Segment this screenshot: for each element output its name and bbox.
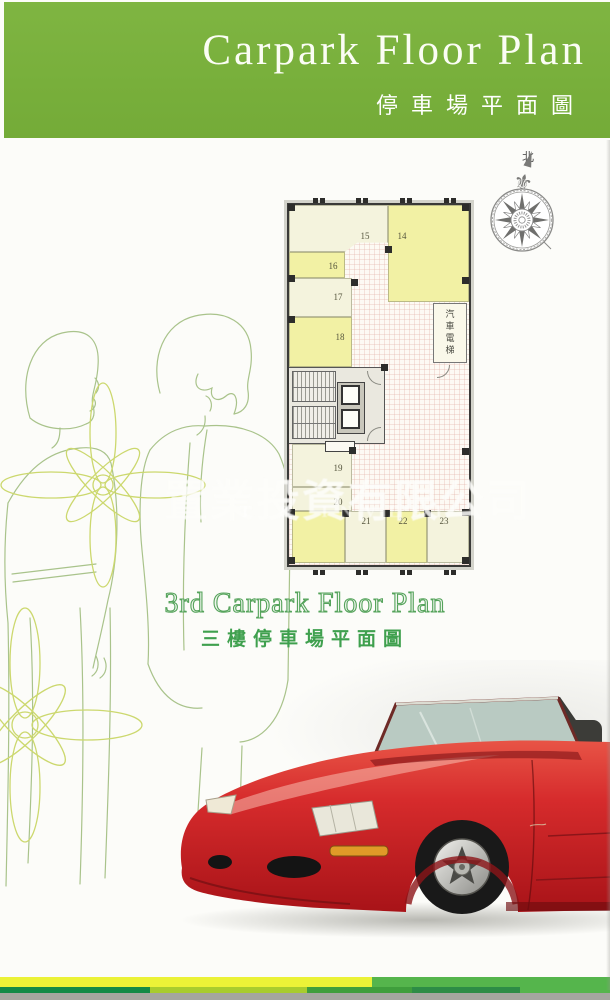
company-watermark-latin: T & INVEST [128, 502, 568, 522]
parking-space-14 [388, 205, 469, 302]
space-label-16: 16 [329, 261, 338, 271]
page-title: Carpark Floor Plan [202, 26, 586, 75]
space-label-14: 14 [398, 231, 407, 241]
plan-caption-chinese: 三樓停車場平面圖 [0, 624, 610, 651]
elevator-shaft [337, 382, 365, 434]
elevator-car-2 [341, 409, 360, 429]
plan-caption: 3rd Carpark Floor Plan [0, 588, 610, 620]
parking-space-15 [289, 205, 388, 252]
car-elevator-box: 汽車電梯 [433, 303, 467, 363]
bumper-intake-large [267, 856, 321, 878]
indicator-amber [330, 846, 388, 856]
staircase-lower [292, 406, 336, 439]
headlight-corner [206, 795, 236, 814]
door-swing-arc [437, 365, 450, 378]
compass-rose: 北 ⚜ [486, 146, 562, 256]
parking-space-18 [289, 317, 352, 367]
staircase-upper [292, 371, 336, 402]
bumper-intake-small [208, 855, 232, 869]
space-label-15: 15 [361, 231, 370, 241]
page-edge-shadow [606, 140, 610, 990]
space-label-17: 17 [334, 292, 343, 302]
space-label-18: 18 [336, 332, 345, 342]
car-elevator-label: 汽車電梯 [444, 309, 457, 357]
parking-space-17 [289, 278, 352, 317]
footer-gray-band [0, 993, 610, 1000]
page-title-chinese: 停車場平面圖 [376, 88, 586, 120]
compass-dial [491, 189, 553, 251]
elevator-car-1 [341, 385, 360, 405]
footer-stripe-yellow [0, 977, 372, 987]
header-band: Carpark Floor Plan 停車場平面圖 [4, 2, 610, 138]
red-convertible-photo [170, 660, 610, 950]
footer-stripe-green [372, 977, 610, 987]
brochure-page: Carpark Floor Plan 停車場平面圖 [0, 0, 610, 1000]
